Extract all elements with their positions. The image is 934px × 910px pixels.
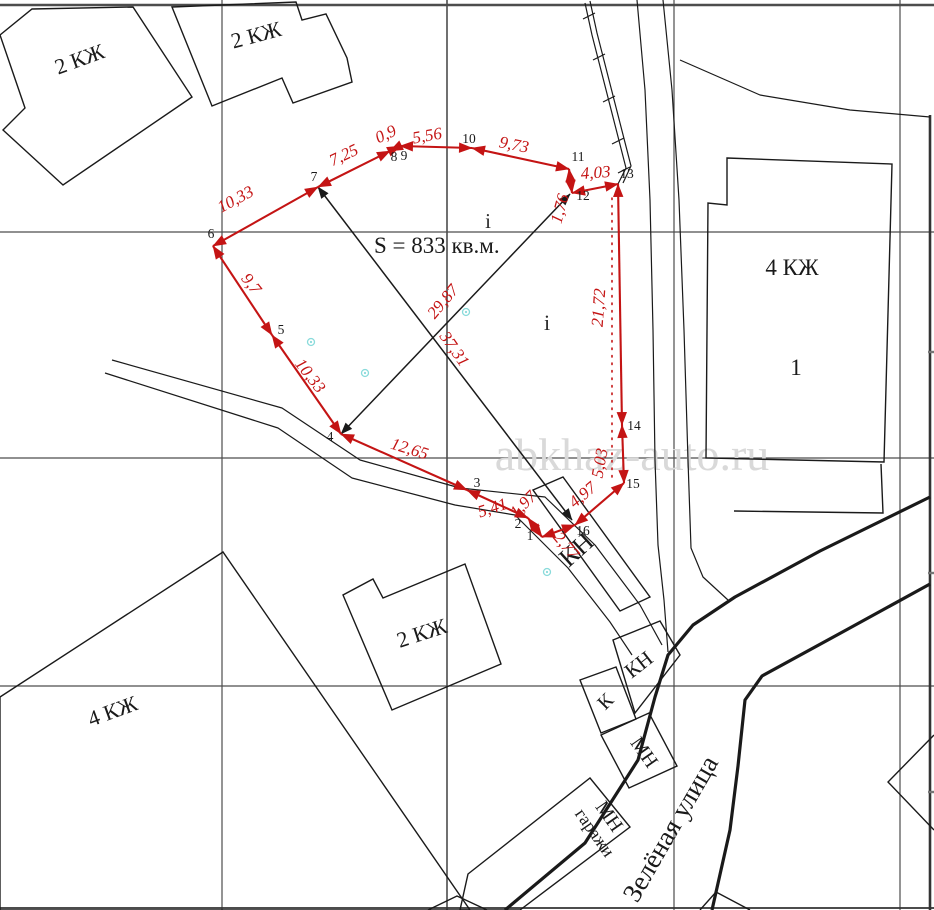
segment-length-label: 5,56 xyxy=(411,124,444,148)
building-outline-kz4-left xyxy=(0,552,470,910)
vertex-number: 13 xyxy=(620,166,634,181)
area-label: S = 833 кв.м. xyxy=(374,233,500,258)
vertex-number: 12 xyxy=(576,188,590,203)
building-label-kz2-left: 2 КЖ xyxy=(51,38,108,79)
fence-line xyxy=(590,1,631,183)
cadastral-map: abkhaz-auto.ru2 КЖ2 КЖ2 КЖ4 КЖ4 КЖ1КНКНК… xyxy=(0,0,934,910)
road-edge-thin xyxy=(663,0,728,600)
building-outline-edge-right-building xyxy=(888,735,934,830)
vertex-number: 11 xyxy=(572,149,585,164)
segment-length-label: 5,41 xyxy=(475,494,509,521)
vertex-number: 14 xyxy=(627,418,641,433)
segment-length-label: 21,72 xyxy=(588,287,610,327)
segment-length-label: 10,33 xyxy=(291,355,330,397)
vertex-number: 15 xyxy=(626,476,640,491)
road-edge-thin xyxy=(637,0,668,652)
diagonal-length-label: 29,87 xyxy=(423,280,463,323)
vertex-number: 5 xyxy=(278,322,285,337)
segment-length-label: 9,7 xyxy=(237,269,266,299)
building-label-kn-mid: КН xyxy=(620,646,658,683)
segment-length-label: 4,03 xyxy=(580,162,611,183)
building-outline-kz2-top xyxy=(172,2,352,106)
vertex-number: 1 xyxy=(527,528,534,543)
vertex-number: 10 xyxy=(462,131,476,146)
parcel-boundary-segment xyxy=(618,184,622,425)
vertex-number: 4 xyxy=(327,429,334,444)
segment-length-label: 10,33 xyxy=(214,182,257,217)
segment-length-label: 9,73 xyxy=(498,132,531,156)
vertex-number: 7 xyxy=(311,169,318,184)
point-designation-label: i xyxy=(485,209,491,233)
survey-marker-dot xyxy=(310,341,312,343)
vertex-number: 6 xyxy=(208,226,215,241)
vertex-number: 9 xyxy=(401,148,408,163)
vertex-number: 3 xyxy=(474,475,481,490)
cadastral-plan-page: abkhaz-auto.ru2 КЖ2 КЖ2 КЖ4 КЖ4 КЖ1КНКНК… xyxy=(0,0,934,910)
road-edge-thin xyxy=(105,373,632,655)
building-outline-kz2-left xyxy=(0,7,192,185)
segment-length-label: 0,9 xyxy=(372,121,400,147)
building-label-mn-small: МН xyxy=(626,733,663,772)
parcel-boundary-segment xyxy=(569,169,572,193)
survey-marker-dot xyxy=(465,311,467,313)
segment-length-label: 7,25 xyxy=(326,140,361,170)
survey-marker-dot xyxy=(546,571,548,573)
segment-length-label: 1,76 xyxy=(547,191,573,225)
survey-marker-dot xyxy=(364,372,366,374)
point-designation-label: i xyxy=(544,310,550,335)
vertex-number: 2 xyxy=(515,516,522,531)
building-outline-kz4-right xyxy=(706,158,892,462)
parcel-boundary-segment xyxy=(400,146,472,148)
road-edge-thick xyxy=(712,584,930,910)
street-name-label: Зелёная улица xyxy=(616,750,724,906)
building-label-kz4-right: 4 КЖ xyxy=(765,255,819,280)
diagonal-dimension-line xyxy=(341,194,570,434)
vertex-number: 16 xyxy=(576,523,590,538)
building-number-kz4-right: 1 xyxy=(790,355,802,380)
segment-length-label: 1,97 xyxy=(506,486,542,522)
building-label-kz2-mid: 2 КЖ xyxy=(394,613,450,653)
building-label-k-small: К xyxy=(593,689,618,714)
building-label-kz2-top: 2 КЖ xyxy=(228,16,284,53)
vertex-number: 8 xyxy=(391,149,398,164)
fence-line xyxy=(585,3,626,184)
building-label-kz4-left: 4 КЖ xyxy=(84,690,141,731)
road-edge-thin xyxy=(680,60,930,117)
